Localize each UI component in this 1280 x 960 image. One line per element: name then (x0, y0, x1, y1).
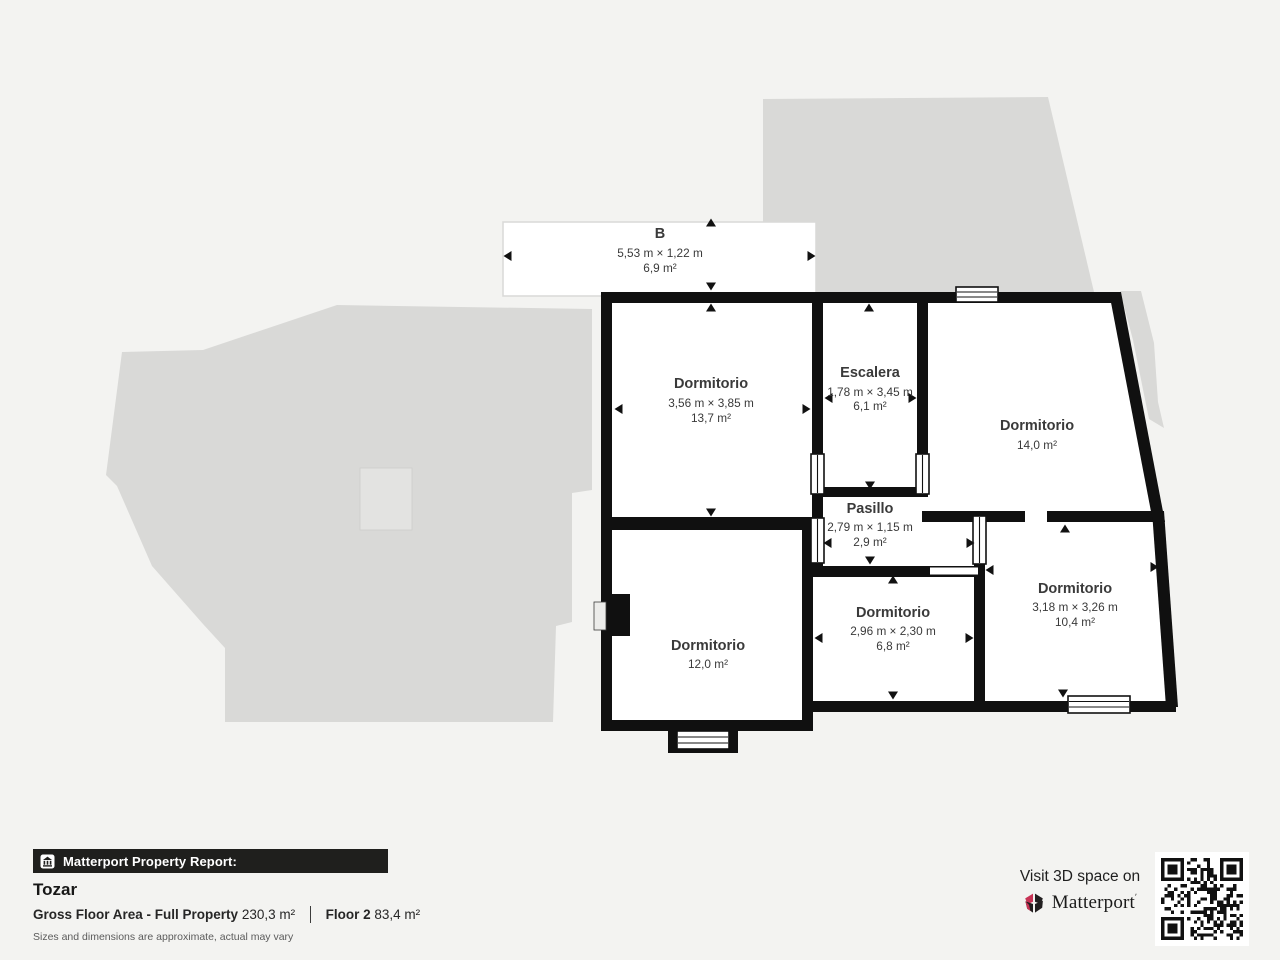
room-area: 2,9 m² (853, 535, 887, 549)
disclaimer-text: Sizes and dimensions are approximate, ac… (33, 931, 293, 943)
room-name: Dormitorio (1038, 581, 1112, 597)
room-name: Escalera (840, 365, 901, 381)
room-dims: 5,53 m × 1,22 m (617, 246, 703, 260)
wall-s-bottom (806, 701, 985, 712)
room-area: 6,8 m² (876, 639, 910, 653)
door-openings (930, 568, 978, 575)
report-bar-label: Matterport Property Report: (63, 854, 237, 869)
room-area: 14,0 m² (1017, 438, 1057, 452)
matterport-pinwheel-icon (1023, 892, 1045, 914)
wall-top (601, 292, 1121, 303)
window-niche (594, 602, 606, 630)
qr-code-pattern (1161, 858, 1243, 940)
visit-3d-label: Visit 3D space on (1000, 868, 1160, 886)
window-escalera-ne (916, 454, 929, 494)
silhouette-left (106, 305, 592, 722)
window-sw-bay (677, 731, 729, 749)
room-dims: 2,96 m × 2,30 m (850, 624, 936, 638)
room-name: Dormitorio (674, 376, 748, 392)
matterport-logo: Matterportʹ (1000, 892, 1160, 914)
gfa-value: 230,3 m² (242, 907, 295, 922)
qr-code (1155, 852, 1249, 946)
report-title-bar: Matterport Property Report: (33, 849, 388, 873)
window-nw-escalera (811, 454, 824, 494)
room-area: 13,7 m² (691, 411, 731, 425)
window-pasillo-left (811, 518, 824, 563)
gfa-label: Gross Floor Area - Full Property (33, 907, 238, 922)
matterport-wordmark: Matterportʹ (1052, 892, 1137, 914)
room-dims: 3,56 m × 3,85 m (668, 396, 754, 410)
visit-3d-block: Visit 3D space on Matterportʹ (1000, 868, 1160, 914)
room-name: Dormitorio (1000, 418, 1074, 434)
door-pasillo-dorm-s (930, 568, 978, 575)
wall-left (601, 292, 612, 731)
silhouette-patio (360, 468, 412, 530)
room-area: 6,1 m² (853, 399, 887, 413)
floor-plan: B 5,53 m × 1,22 m 6,9 m² Dormitorio 3,56… (0, 0, 1280, 960)
property-report-icon (40, 854, 55, 869)
floor-value: 83,4 m² (374, 907, 420, 922)
floor-area-summary: Gross Floor Area - Full Property 230,3 m… (33, 906, 420, 923)
property-name: Tozar (33, 880, 77, 900)
room-dims: 1,78 m × 3,45 m (827, 385, 913, 399)
room-area: 12,0 m² (688, 657, 728, 671)
wall-ne-bottom-b (1047, 511, 1157, 522)
room-area: 6,9 m² (643, 261, 677, 275)
room-area: 10,4 m² (1055, 615, 1095, 629)
room-name: Pasillo (847, 501, 894, 517)
floor-label: Floor 2 (326, 907, 371, 922)
room-dims: 2,79 m × 1,15 m (827, 520, 913, 534)
room-name: Dormitorio (856, 605, 930, 621)
window-se-left (973, 516, 986, 564)
room-name: B (655, 226, 665, 242)
wall-nw-bottom (601, 517, 815, 530)
separator (310, 906, 311, 923)
window-se-bottom (1068, 696, 1130, 713)
window-top (956, 287, 998, 302)
room-name: Dormitorio (671, 638, 745, 654)
room-dims: 3,18 m × 3,26 m (1032, 600, 1118, 614)
